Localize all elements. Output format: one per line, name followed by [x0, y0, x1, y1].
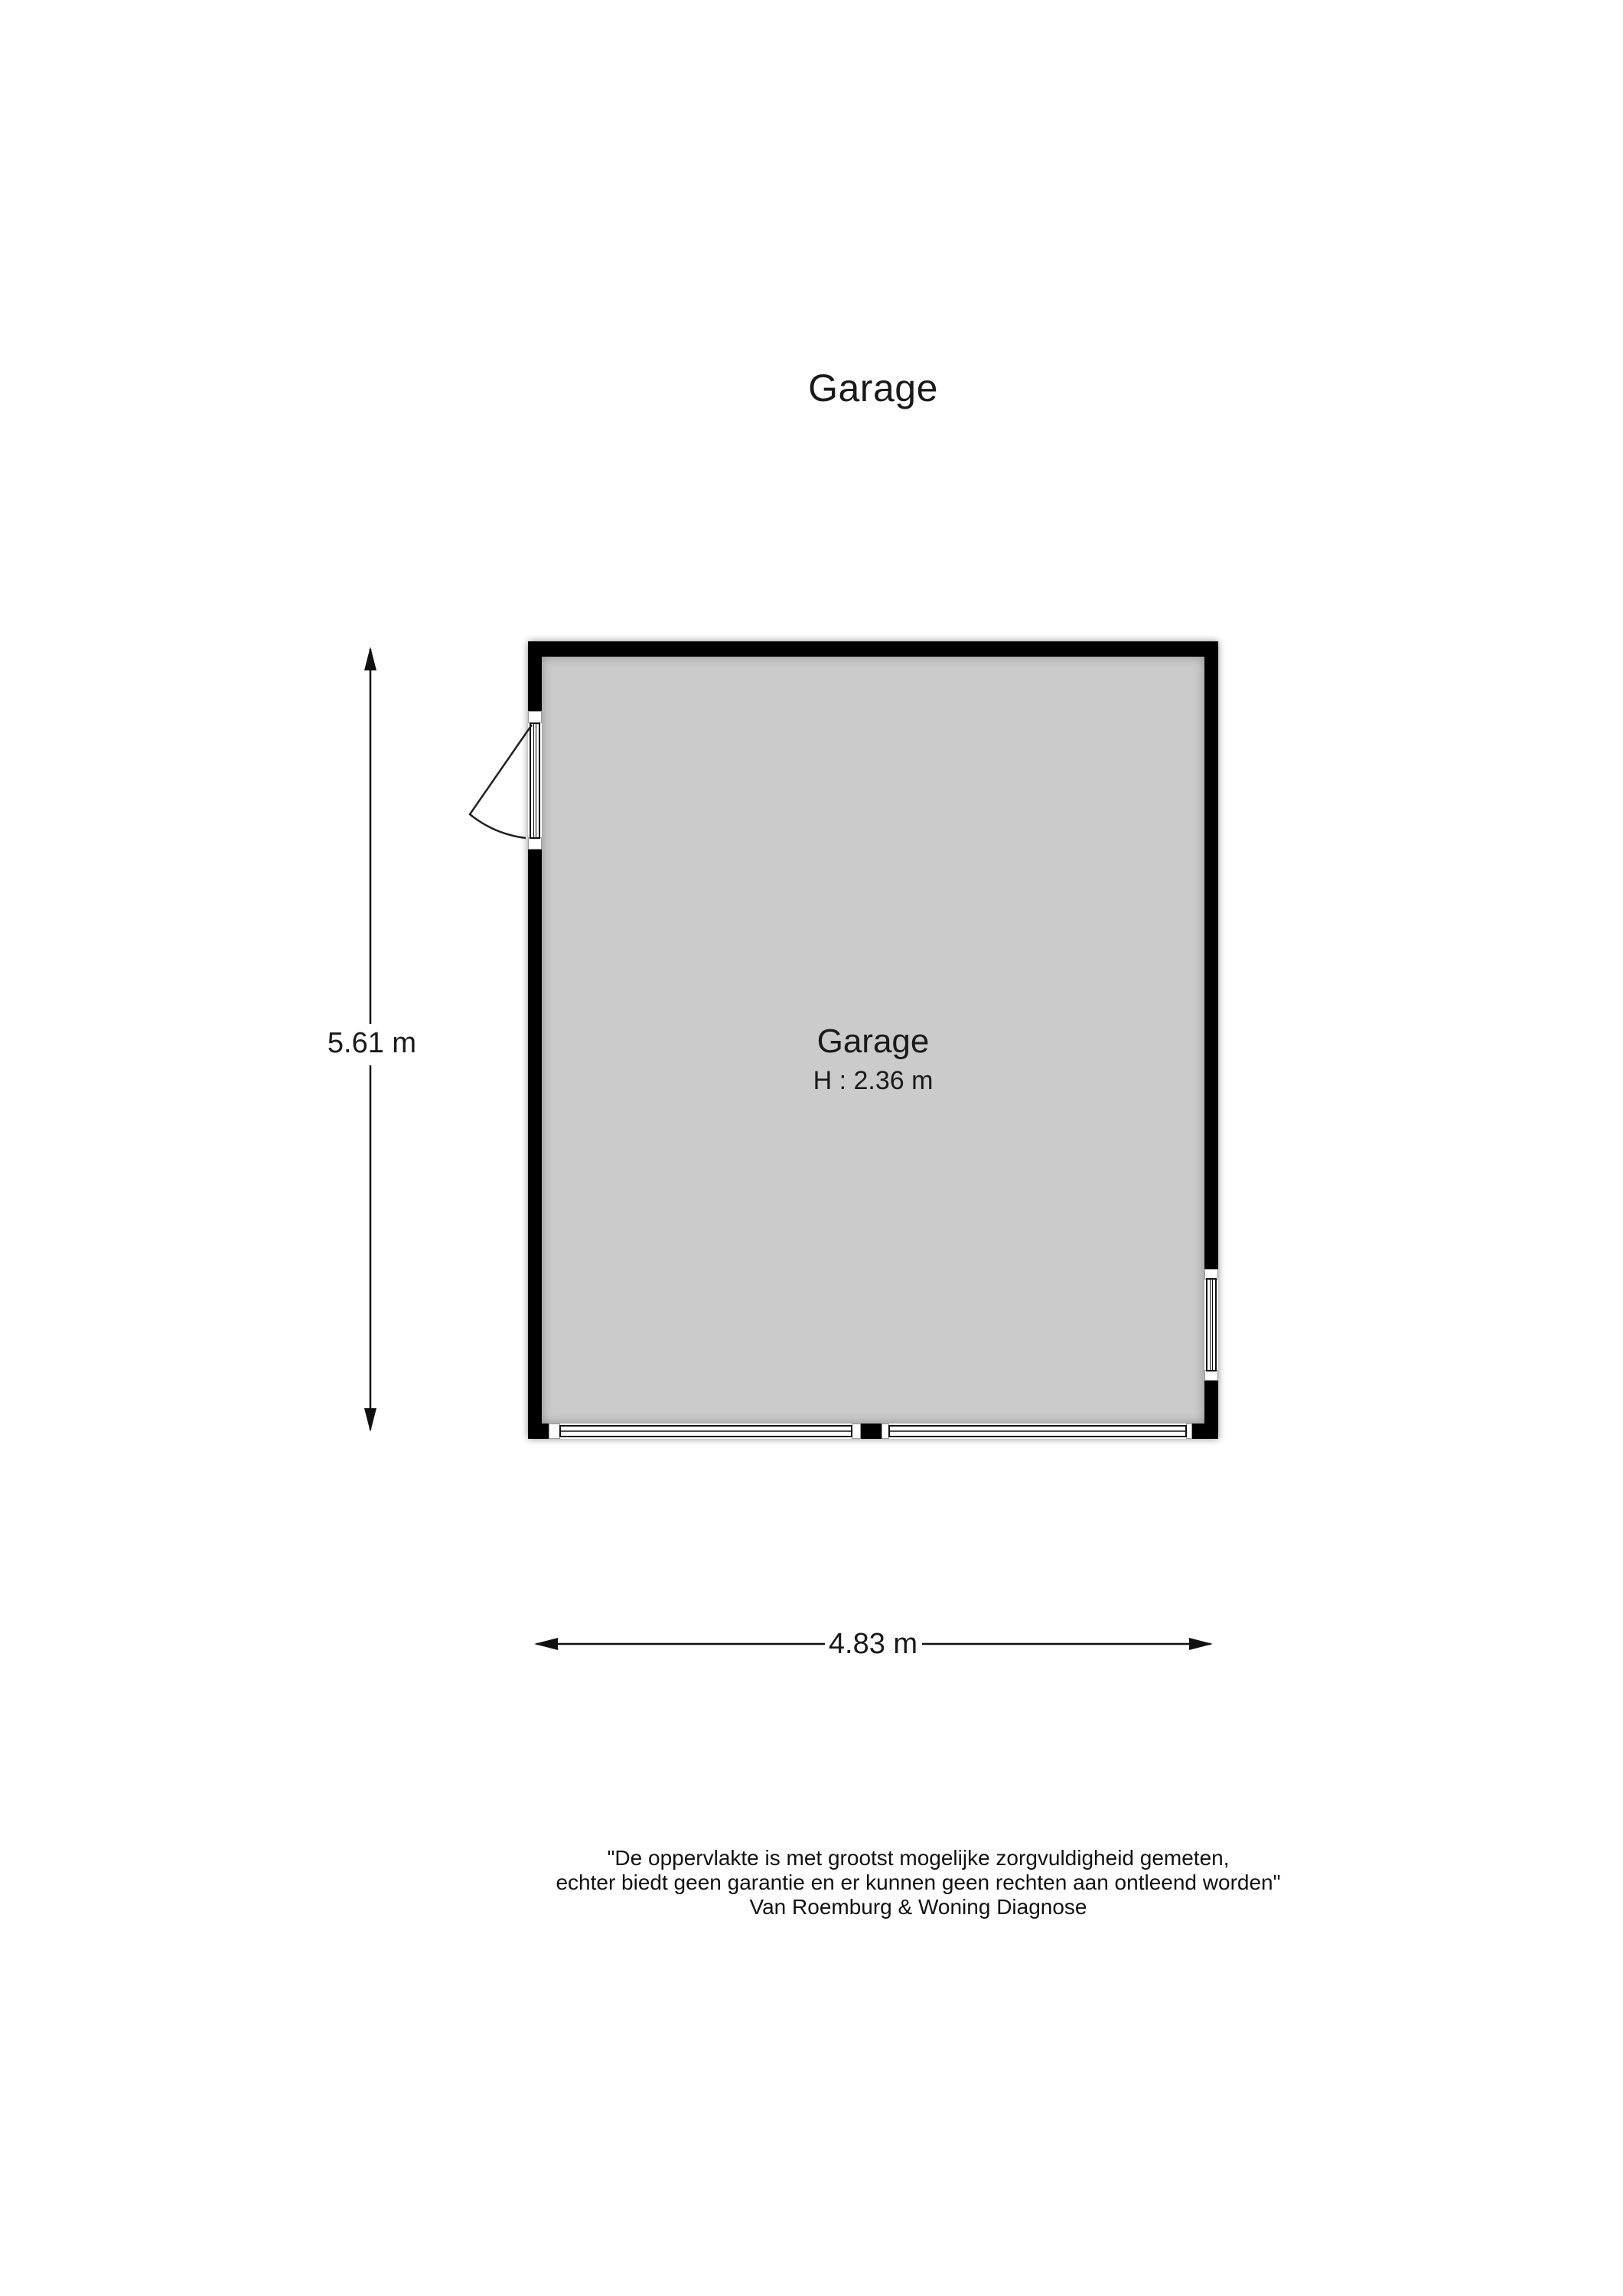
door-jamb-top: [529, 712, 542, 723]
window-panel: [1207, 1279, 1216, 1371]
window-jamb-bottom: [1205, 1371, 1218, 1381]
arrowhead-up: [364, 647, 376, 670]
arrowhead-down: [364, 1408, 376, 1432]
jamb: [852, 1424, 861, 1439]
jamb: [1187, 1424, 1192, 1439]
page-title: Garage: [528, 366, 1218, 410]
disclaimer-line-3: Van Roemburg & Woning Diagnose: [459, 1895, 1377, 1919]
arrowhead-right: [1189, 1638, 1213, 1650]
jamb: [549, 1424, 560, 1439]
floorplan-page: Garage: [0, 0, 1623, 2296]
disclaimer: "De oppervlakte is met grootst mogelijke…: [459, 1846, 1377, 1919]
room-name: Garage: [542, 1023, 1204, 1060]
jamb: [882, 1424, 889, 1439]
bottom-opening-right: [882, 1424, 1192, 1439]
room-label: Garage H : 2.36 m: [542, 1023, 1204, 1095]
door-swing-arc: [470, 725, 532, 838]
door-panel: [530, 723, 539, 838]
garage-floorplan: Garage H : 2.36 m: [528, 641, 1218, 1439]
width-dimension-label: 4.83 m: [797, 1627, 950, 1661]
room-height-label: H : 2.36 m: [542, 1066, 1204, 1095]
bottom-opening-left: [549, 1424, 861, 1439]
height-dimension-label: 5.61 m: [306, 1026, 438, 1060]
entrance-door: [470, 711, 542, 850]
disclaimer-line-1: "De oppervlakte is met grootst mogelijke…: [459, 1846, 1377, 1870]
door-jamb-bottom: [529, 838, 542, 850]
disclaimer-line-2: echter biedt geen garantie en er kunnen …: [459, 1870, 1377, 1895]
right-window: [1204, 1269, 1218, 1381]
window-jamb-top: [1205, 1270, 1218, 1280]
arrowhead-left: [534, 1638, 558, 1650]
